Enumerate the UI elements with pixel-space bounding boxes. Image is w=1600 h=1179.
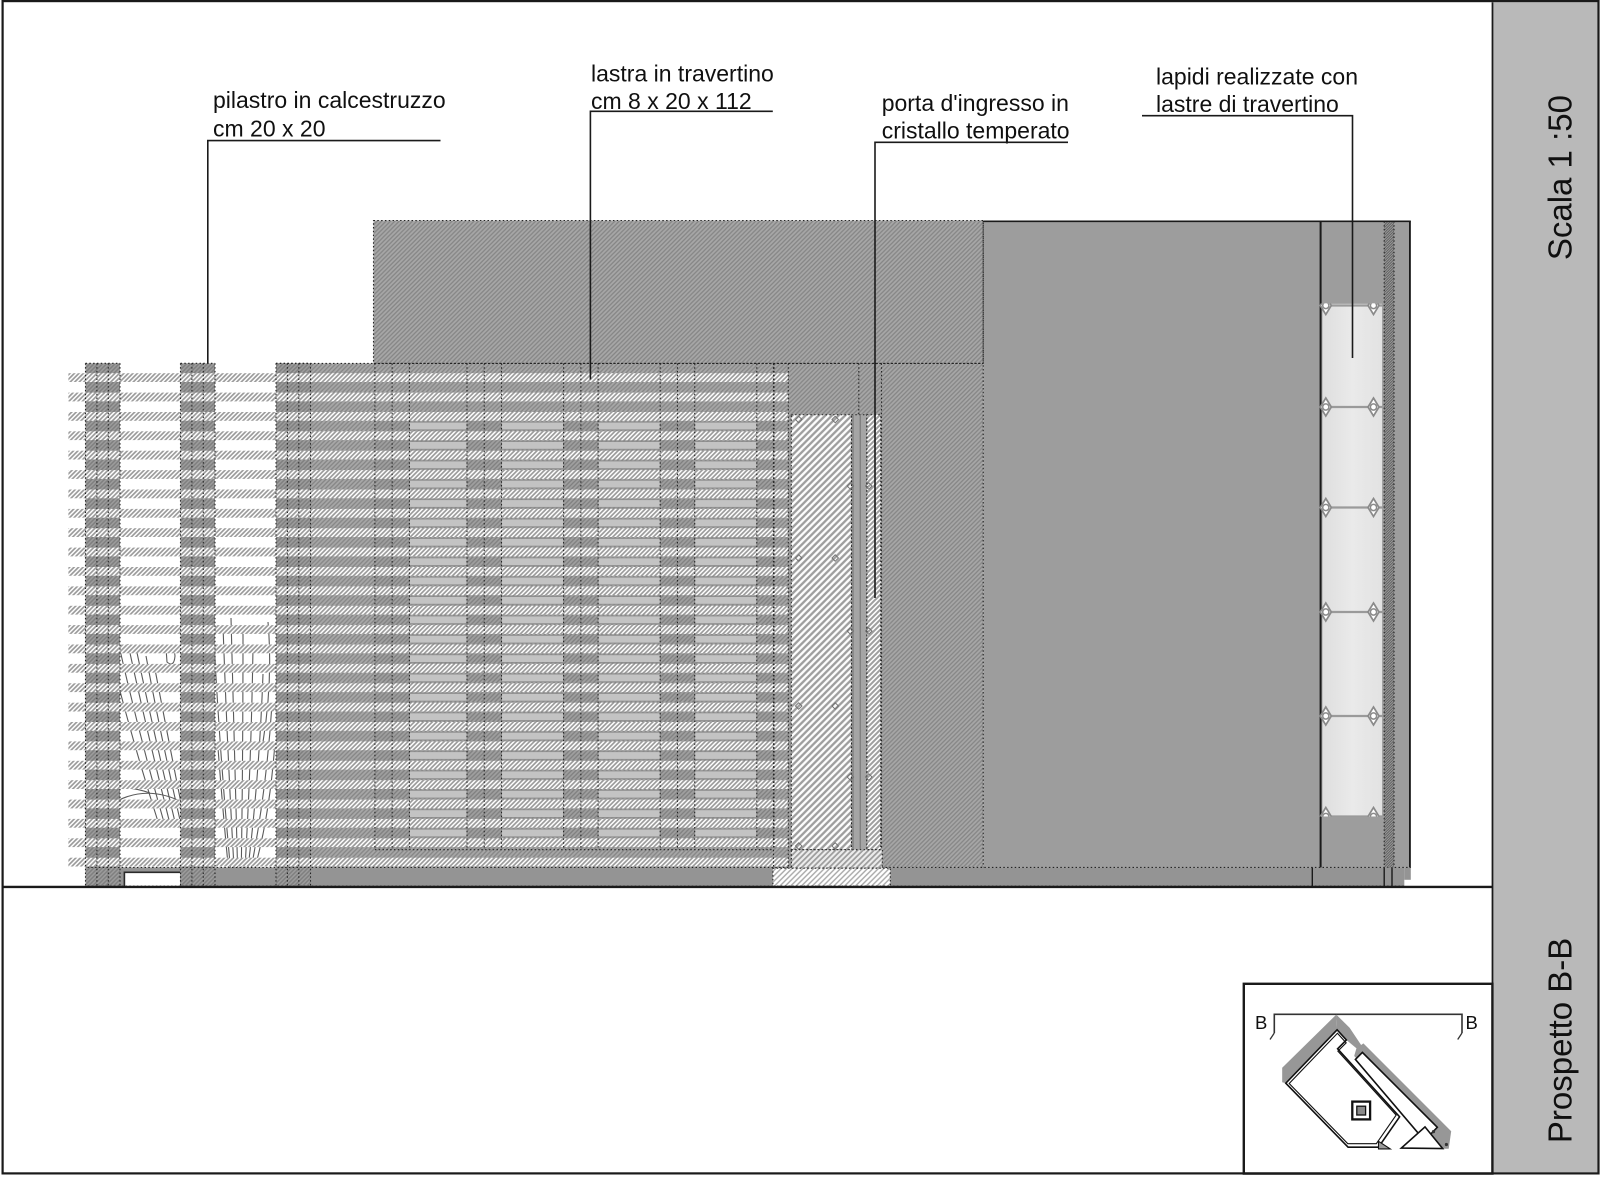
svg-text:B: B (1466, 1012, 1478, 1033)
svg-text:porta d'ingresso in: porta d'ingresso in (882, 90, 1069, 116)
svg-text:lapidi realizzate con: lapidi realizzate con (1156, 64, 1358, 90)
svg-text:pilastro in calcestruzzo: pilastro in calcestruzzo (213, 87, 446, 113)
svg-text:B: B (1255, 1012, 1267, 1033)
svg-text:Scala 1 :50: Scala 1 :50 (1542, 95, 1579, 260)
svg-text:cm 8 x 20 x 112: cm 8 x 20 x 112 (591, 88, 752, 114)
svg-text:lastre di travertino: lastre di travertino (1156, 91, 1339, 117)
svg-text:lastra in travertino: lastra in travertino (591, 61, 774, 87)
svg-text:cristallo temperato: cristallo temperato (882, 118, 1070, 144)
svg-text:Prospetto B-B: Prospetto B-B (1542, 938, 1579, 1143)
svg-text:cm 20 x 20: cm 20 x 20 (213, 116, 326, 142)
